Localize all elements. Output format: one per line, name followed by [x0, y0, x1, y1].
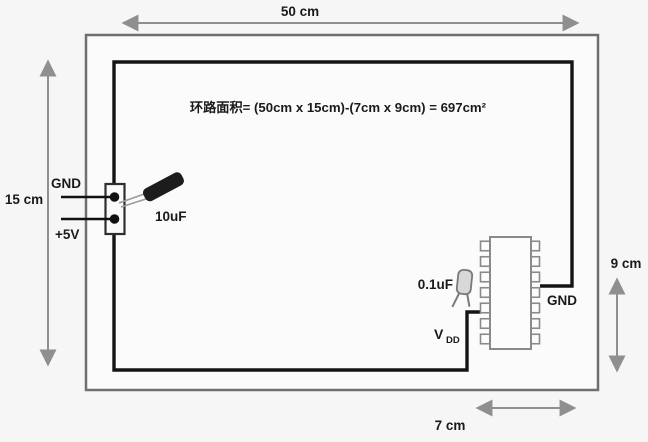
- ic-pin: [481, 334, 491, 344]
- ic-pin: [481, 303, 491, 313]
- capacitor-body: [456, 269, 472, 294]
- power-connector: [106, 184, 125, 234]
- dimension-label-right: 9 cm: [611, 256, 642, 271]
- ic-pin: [481, 288, 491, 298]
- pcb-loop-area-diagram: 50 cm 15 cm 9 cm 7 cm 环路面积= (50cm x 15cm…: [0, 0, 648, 442]
- ic-package: [490, 237, 531, 349]
- dimension-label-left: 15 cm: [5, 192, 43, 207]
- connector-5v-pin-dot: [110, 214, 120, 224]
- vdd-label-subscript: DD: [446, 335, 460, 346]
- ic-pin: [481, 257, 491, 267]
- connector-gnd-pin-dot: [110, 192, 120, 202]
- ic-pin: [481, 272, 491, 282]
- ic-pin: [481, 241, 491, 251]
- vdd-label: V: [434, 326, 444, 342]
- bulk-capacitor-label: 10uF: [155, 209, 187, 224]
- loop-area-formula: 环路面积= (50cm x 15cm)-(7cm x 9cm) = 697cm²: [190, 99, 487, 115]
- bypass-capacitor-label: 0.1uF: [418, 277, 453, 292]
- dimension-label-top: 50 cm: [281, 4, 319, 19]
- ic-gnd-label: GND: [547, 293, 577, 308]
- ic-pin: [481, 319, 491, 329]
- connector-gnd-label: GND: [51, 176, 81, 191]
- dimension-label-bottom: 7 cm: [435, 418, 466, 433]
- connector-plus5v-label: +5V: [55, 227, 79, 242]
